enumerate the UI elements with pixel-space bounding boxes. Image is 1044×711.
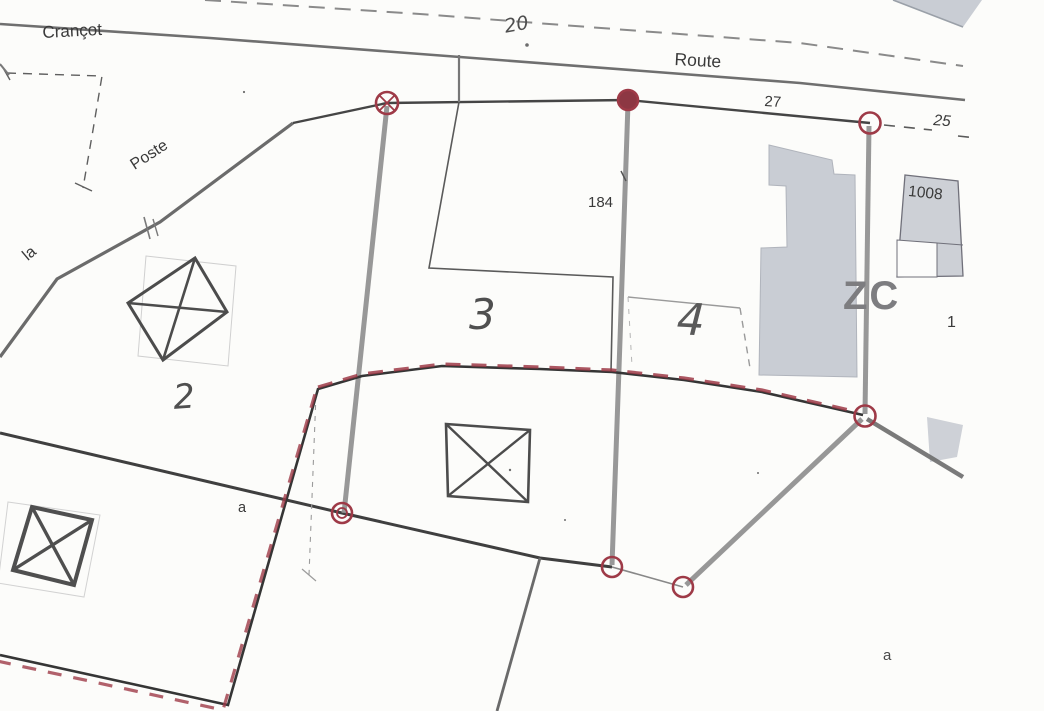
wall-diagonal-sw <box>686 419 862 585</box>
marker-n-center <box>618 90 638 110</box>
route-south-edge <box>0 24 965 100</box>
map-linework <box>0 0 1044 711</box>
label-1008: 1008 <box>907 184 943 203</box>
label-a-left: a <box>238 501 246 516</box>
label-zc: ZC <box>843 276 900 316</box>
center-crossed-diagonals <box>446 424 530 502</box>
dot-under-20 <box>525 43 529 47</box>
thick-gray-survey-lines <box>344 103 963 585</box>
south-branch-line <box>497 558 540 711</box>
speck-3 <box>757 472 759 474</box>
dashed-parcel-line-topleft <box>7 73 102 188</box>
parcel4-right-edge-dashed <box>740 308 750 368</box>
label-route: Route <box>674 51 722 71</box>
southwest-boundary <box>0 433 612 567</box>
label-1: 1 <box>947 315 956 331</box>
label-27: 27 <box>764 94 782 110</box>
parcel4-left-edge-faint <box>628 297 632 366</box>
diamond-building-diagonals <box>128 258 227 360</box>
speck-1 <box>243 91 245 93</box>
highlight-base-black <box>0 366 863 705</box>
route-road-lines <box>0 0 965 100</box>
route-north-edge-dashed <box>205 0 963 66</box>
label-parcel-3: 3 <box>469 294 496 336</box>
label-25: 25 <box>933 113 951 130</box>
building-cross-symbols <box>0 256 530 597</box>
dashed-line-tick-b <box>75 183 92 191</box>
cadastral-map: Crançot 20 Route 27 25 Poste la 184 1008… <box>0 0 1044 711</box>
highlight-red-dash-west <box>0 394 315 710</box>
label-parcel-2: 2 <box>172 379 196 414</box>
label-a-right: a <box>883 648 891 663</box>
road-tick-2 <box>153 219 158 236</box>
parcel-1008-white-part <box>897 240 937 277</box>
label-184: 184 <box>588 195 613 210</box>
speck-4 <box>564 519 566 521</box>
speck-2 <box>509 469 511 471</box>
small-building-footprint <box>927 417 963 462</box>
wall-west <box>344 106 387 513</box>
parcel3-thin-outline <box>429 102 613 372</box>
large-building-footprint <box>759 145 857 377</box>
diamond-building <box>128 258 227 360</box>
wall-center <box>612 103 628 565</box>
label-20: 20 <box>503 14 530 37</box>
wall-east <box>865 126 869 414</box>
scan-specks <box>0 43 759 521</box>
corner-building-triangle <box>893 0 982 27</box>
dash-after-25-marker <box>884 125 976 138</box>
edge-mark-left <box>0 64 9 75</box>
label-crancot: Crançot <box>42 21 102 41</box>
building-footprints-gray <box>759 0 982 462</box>
label-parcel-4: 4 <box>676 298 706 343</box>
